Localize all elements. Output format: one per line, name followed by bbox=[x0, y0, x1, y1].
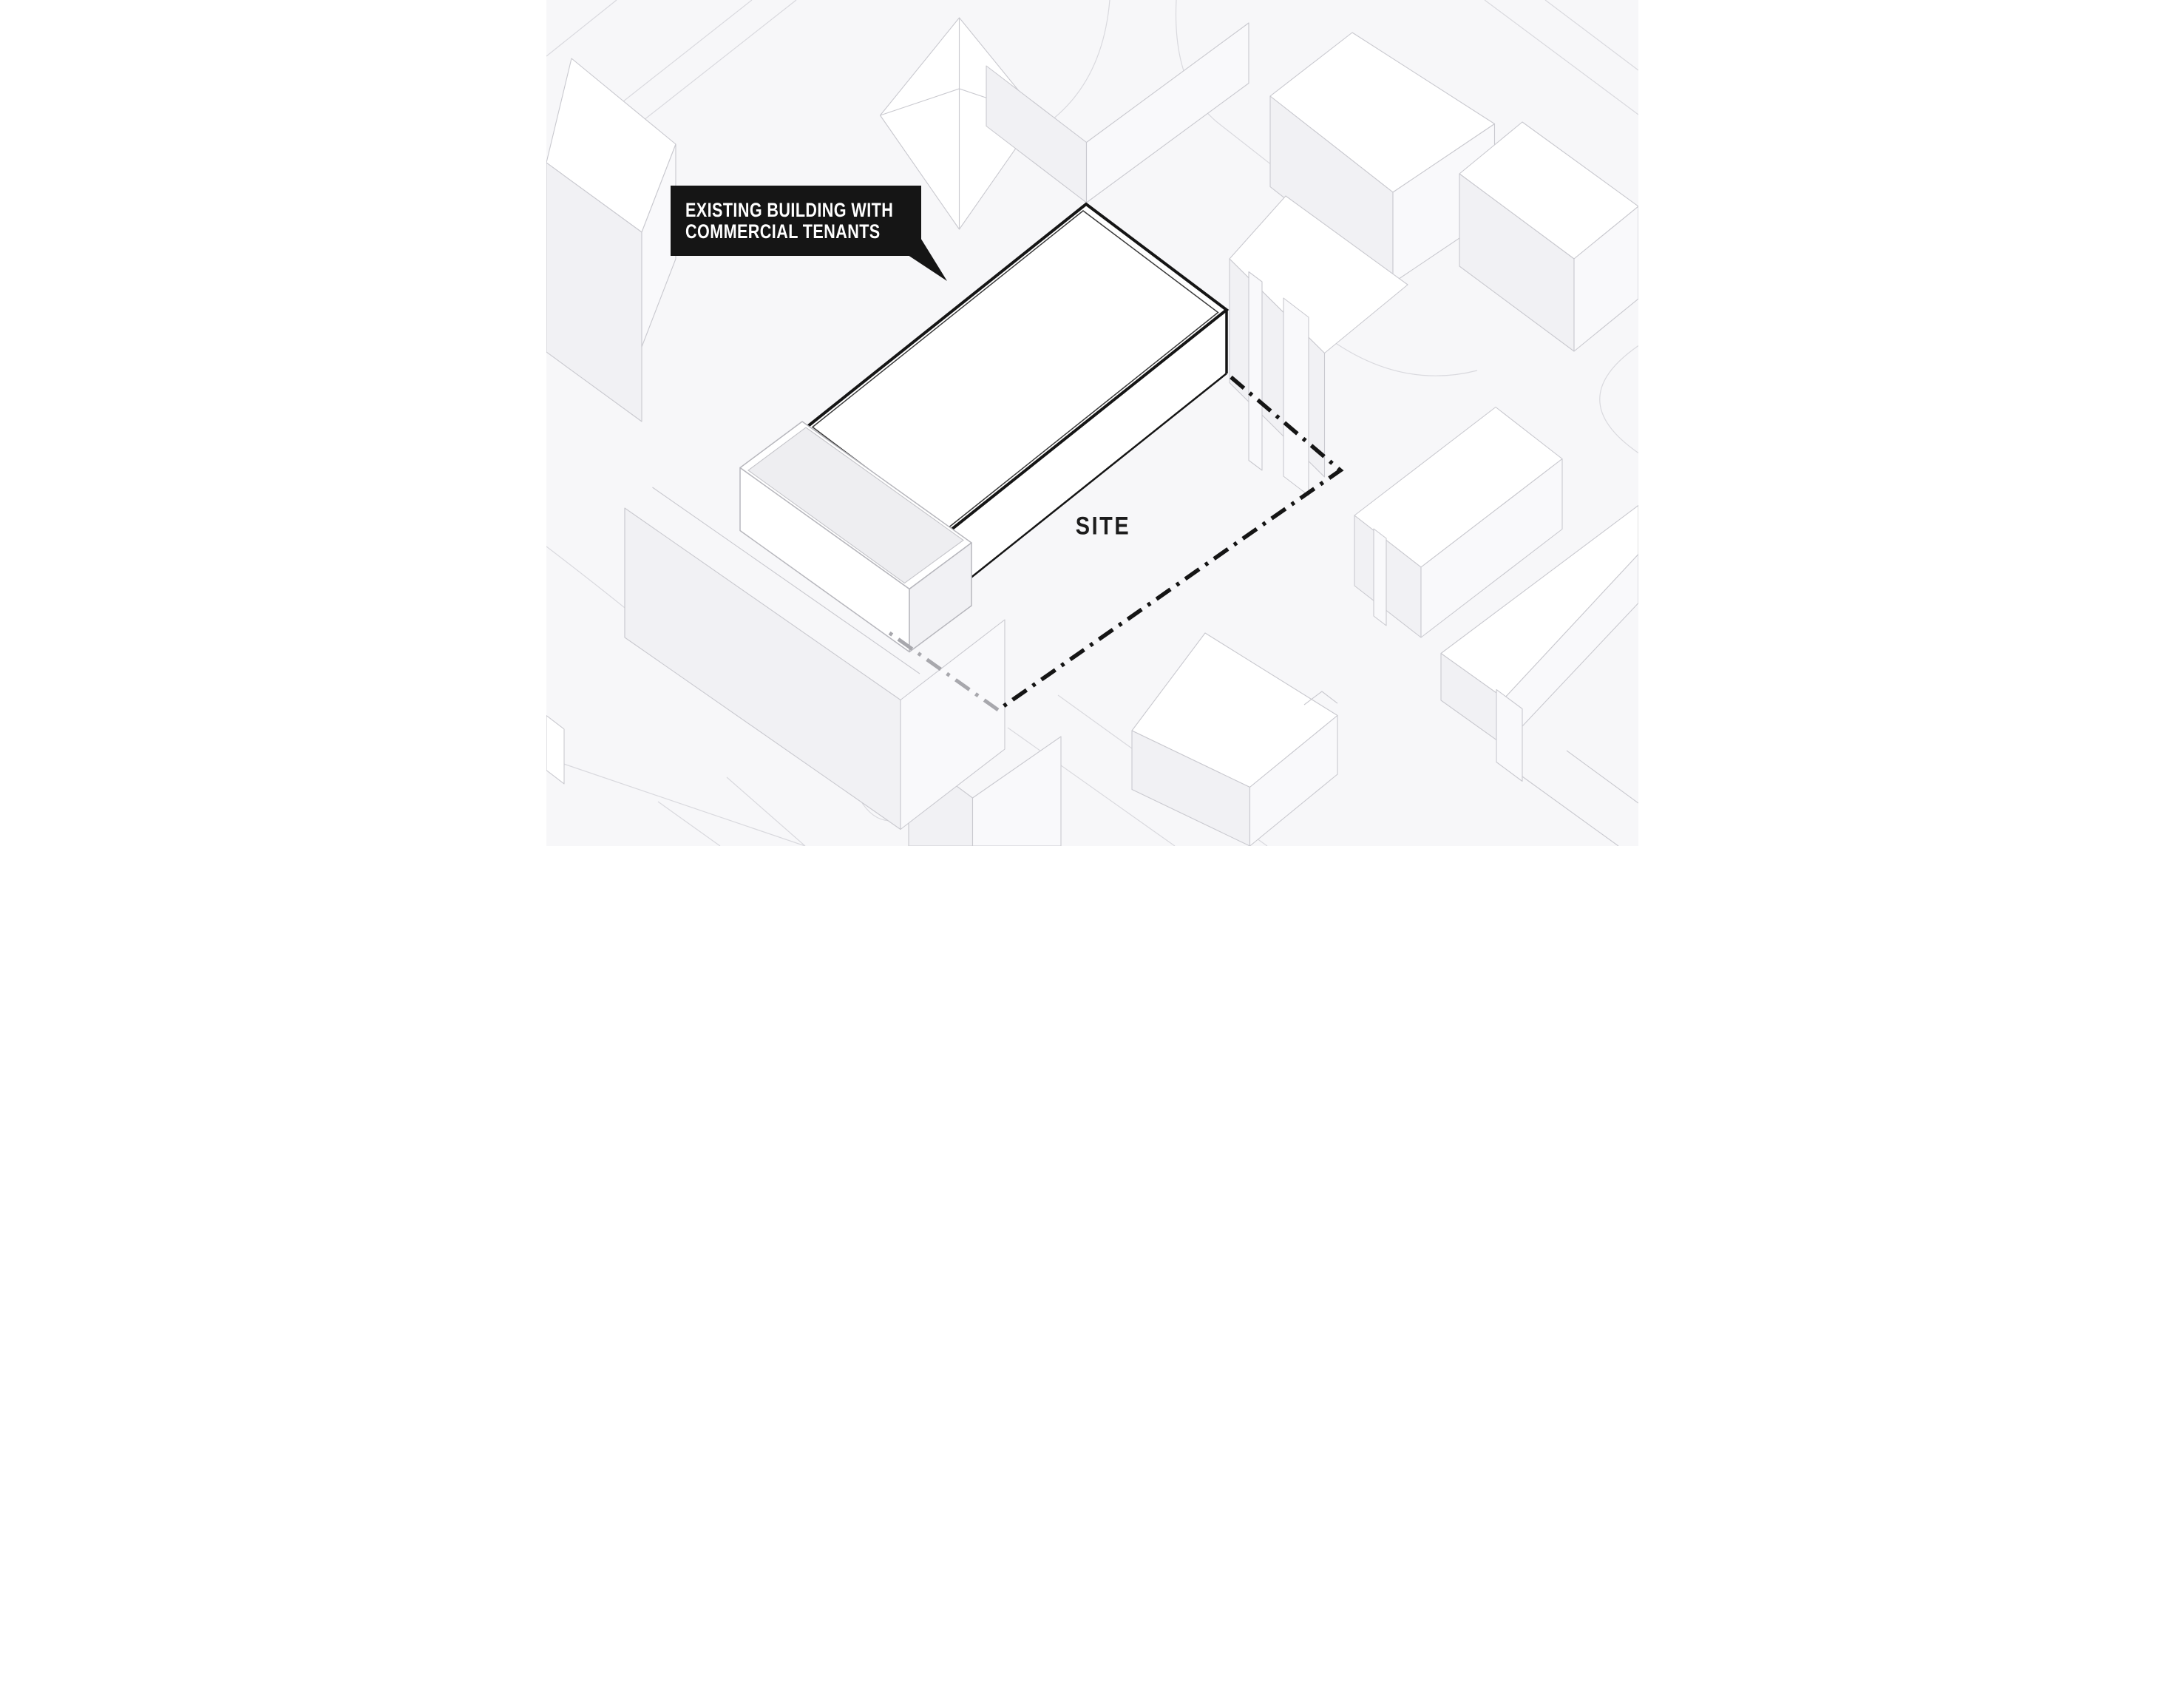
axonometric-scene bbox=[546, 0, 1638, 846]
callout-line-1: EXISTING BUILDING WITH bbox=[685, 200, 874, 221]
callout-line-2: COMMERCIAL TENANTS bbox=[685, 221, 874, 243]
diagram-canvas: EXISTING BUILDING WITH COMMERCIAL TENANT… bbox=[546, 0, 1638, 846]
callout-bubble: EXISTING BUILDING WITH COMMERCIAL TENANT… bbox=[671, 186, 921, 256]
context-building bbox=[1283, 298, 1309, 495]
site-label: SITE bbox=[1075, 512, 1130, 541]
context-building bbox=[1374, 529, 1386, 626]
context-building bbox=[1249, 272, 1262, 471]
